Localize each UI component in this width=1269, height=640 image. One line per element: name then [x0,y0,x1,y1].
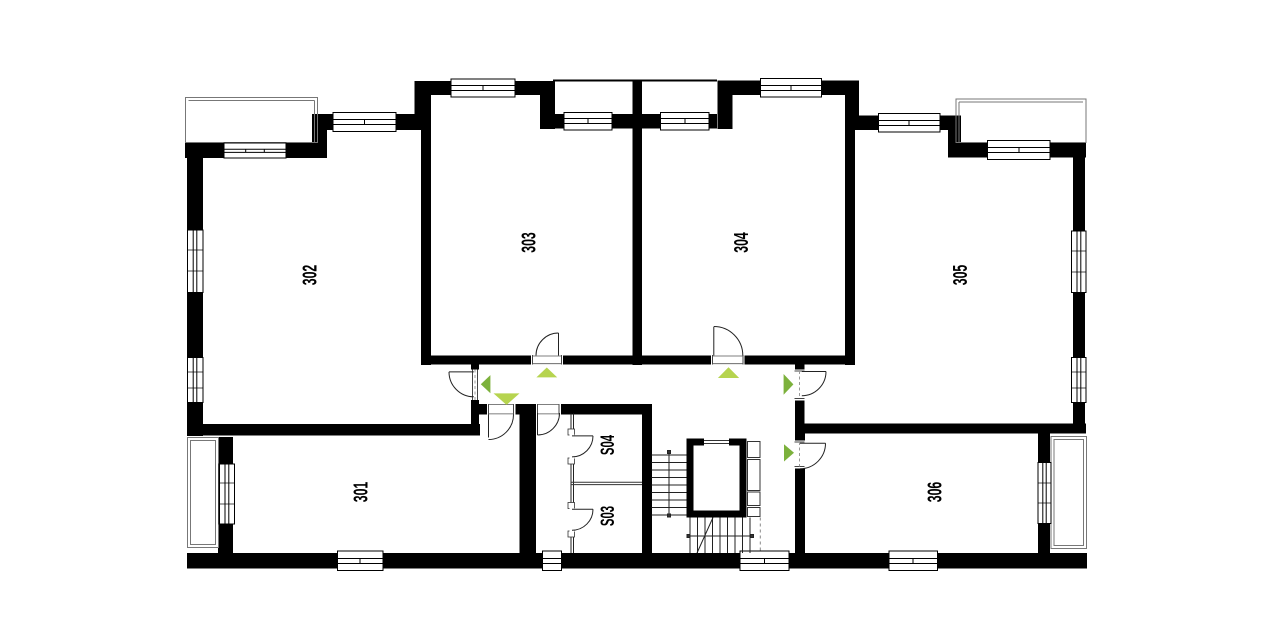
svg-text:304: 304 [730,232,753,253]
svg-text:302: 302 [298,265,321,286]
svg-text:301: 301 [349,482,372,503]
svg-text:303: 303 [517,232,540,253]
svg-text:S04: S04 [598,435,619,455]
svg-text:306: 306 [923,482,946,503]
svg-text:305: 305 [949,265,972,286]
svg-text:S03: S03 [598,506,619,526]
